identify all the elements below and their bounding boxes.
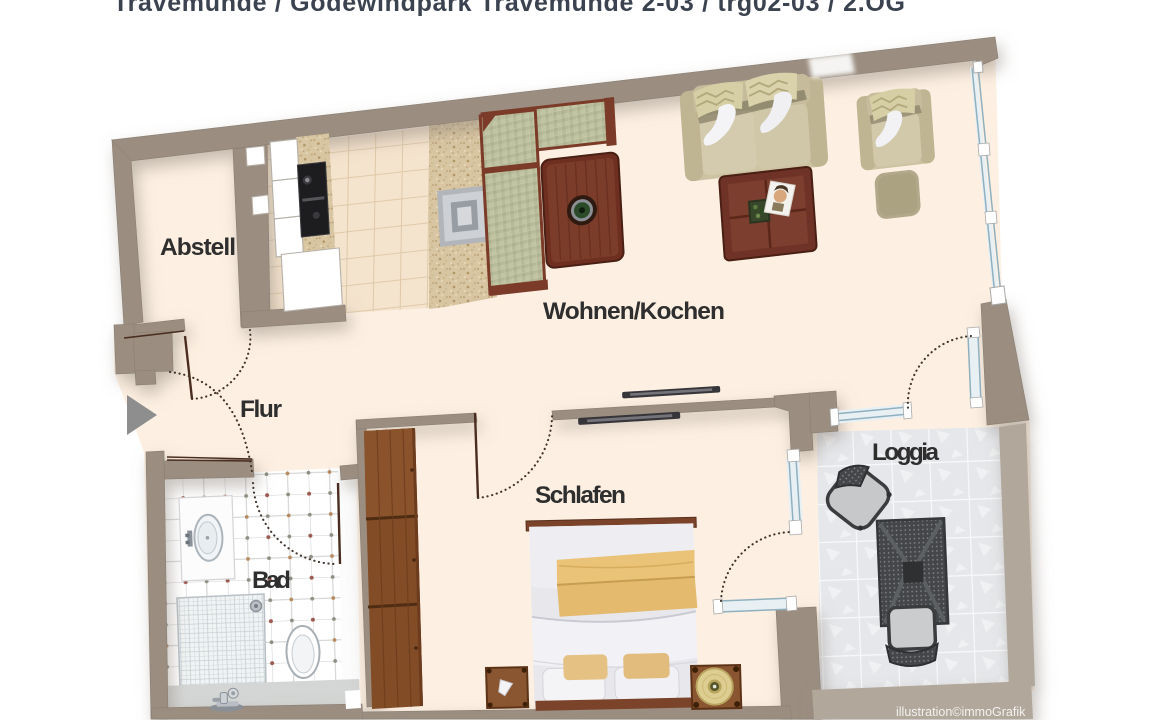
svg-text:Flur: Flur xyxy=(240,396,282,423)
svg-text:Schlafen: Schlafen xyxy=(535,482,626,509)
svg-text:Abstell: Abstell xyxy=(160,234,236,261)
svg-text:illustration©immoGrafik: illustration©immoGrafik xyxy=(896,705,1026,719)
svg-text:Wohnen/Kochen: Wohnen/Kochen xyxy=(543,298,725,325)
svg-text:Loggia: Loggia xyxy=(872,439,939,466)
svg-text:Travemünde / Godewindpark Trav: Travemünde / Godewindpark Travemünde 2-0… xyxy=(113,0,905,17)
svg-text:Bad: Bad xyxy=(252,567,291,594)
